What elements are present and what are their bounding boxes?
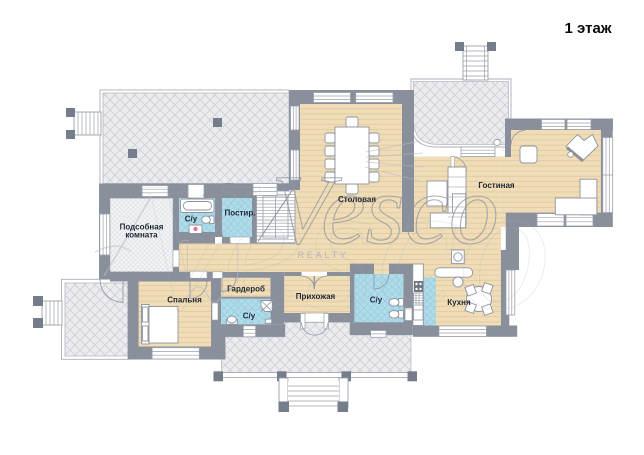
svg-text:Спальня: Спальня (167, 296, 202, 305)
svg-text:Кухня: Кухня (447, 298, 471, 307)
svg-text:1 этаж: 1 этаж (565, 20, 612, 37)
svg-text:Постир.: Постир. (225, 209, 256, 218)
svg-text:REALTY: REALTY (297, 250, 348, 261)
svg-text:комната: комната (125, 231, 158, 240)
svg-text:Гостиная: Гостиная (478, 181, 514, 190)
svg-text:С/у: С/у (185, 215, 198, 224)
svg-text:С/у: С/у (370, 296, 383, 305)
svg-text:Столовая: Столовая (338, 195, 376, 204)
svg-text:С/у: С/у (243, 312, 256, 321)
svg-text:Vesco: Vesco (271, 154, 499, 265)
svg-text:Гардероб: Гардероб (227, 285, 265, 294)
svg-text:Прихожая: Прихожая (296, 292, 336, 301)
